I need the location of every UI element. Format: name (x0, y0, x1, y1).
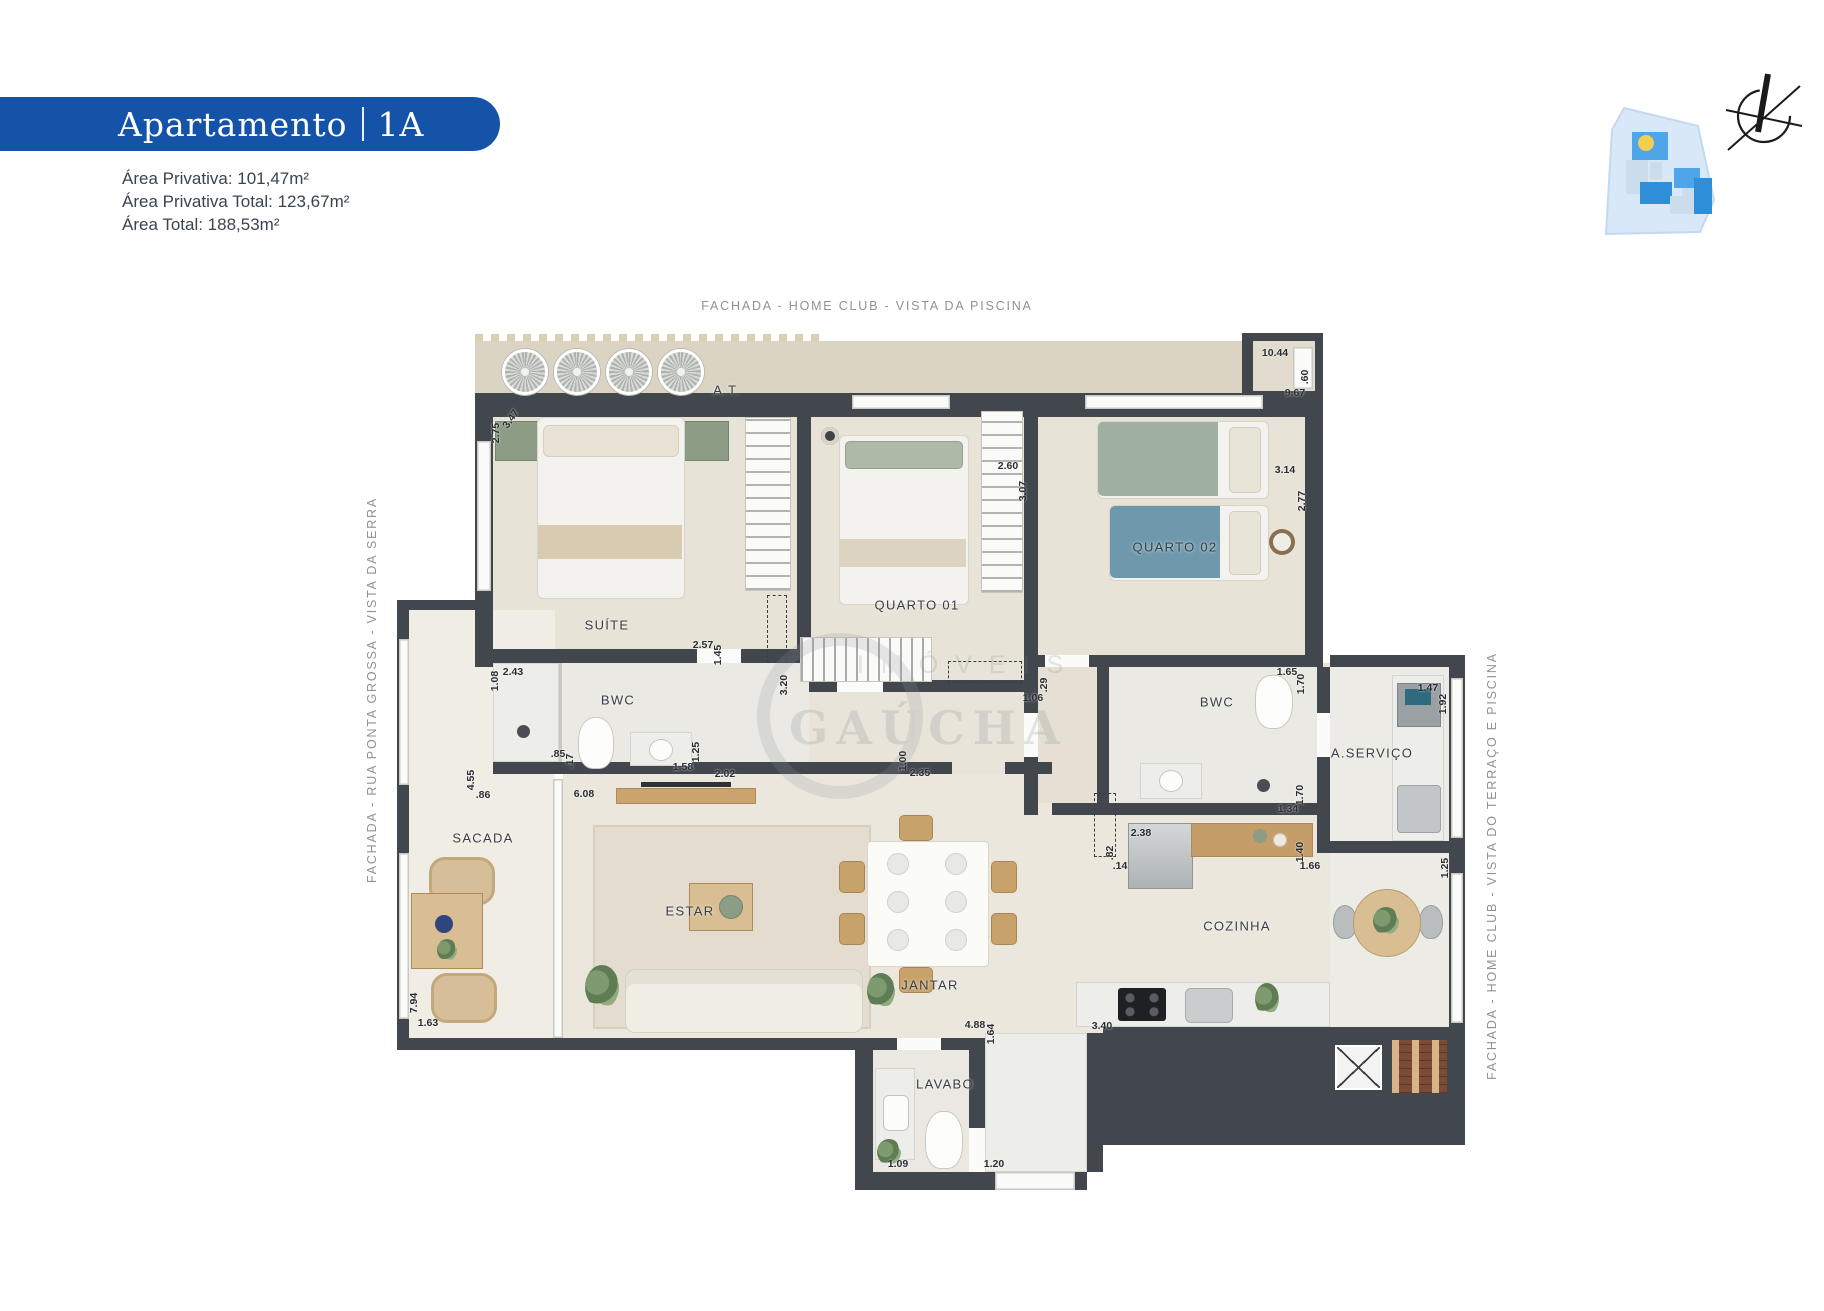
condenser-fan-icon (502, 349, 548, 395)
facade-label-top: FACHADA - HOME CLUB - VISTA DA PISCINA (667, 299, 1067, 313)
room-label-quarto02: QUARTO 02 (1133, 540, 1218, 555)
quarto02-bed1-blanket (1098, 422, 1218, 496)
area-total: Área Total: 188,53m² (122, 214, 349, 237)
badge-title: Apartamento (118, 105, 348, 144)
dim-label: 1.66 (1300, 860, 1320, 872)
badge-unit-number: 1A (378, 105, 425, 144)
dim-label: 3.07 (1017, 481, 1029, 501)
quarto01-wardrobe (981, 411, 1023, 593)
dim-label: 2.75 (490, 423, 502, 443)
wall (797, 393, 811, 649)
quarto02-mirror (1269, 529, 1295, 555)
bwc1-toilet (578, 717, 614, 769)
room-label-at: A.T. (713, 383, 741, 398)
dim-label: 3.20 (778, 675, 790, 695)
laundry-tank (1397, 785, 1441, 833)
dim-label: 1.63 (418, 1017, 438, 1029)
kitchen-sink (1185, 988, 1233, 1023)
vertical-garden-shaft (1392, 1040, 1447, 1093)
quarto01-wall-art (821, 427, 839, 445)
balcony-bench-bottom (431, 973, 497, 1023)
cooktop (1118, 988, 1166, 1021)
wall (1305, 393, 1323, 667)
dim-label: 2.60 (998, 460, 1018, 472)
wall (855, 1038, 873, 1190)
wall (1087, 1033, 1103, 1172)
dim-label: 1.58 (673, 761, 693, 773)
dim-label: .86 (476, 789, 491, 801)
room-label-jantar: JANTAR (901, 978, 958, 993)
balcony-glass-door (553, 779, 563, 1038)
room-label-bwc2: BWC (1200, 695, 1234, 710)
balcony-table-decor (435, 915, 453, 933)
suite-window (477, 441, 491, 591)
area-privativa-total: Área Privativa Total: 123,67m² (122, 191, 349, 214)
room-label-lavabo: LAVABO (916, 1077, 974, 1092)
bwc2-shower-head-icon (1257, 779, 1270, 792)
bwc2-door (1024, 713, 1038, 757)
plate (887, 929, 909, 951)
wall (1024, 393, 1038, 667)
room-label-sacada: SACADA (452, 831, 513, 846)
dim-label: 9.67 (1285, 387, 1305, 399)
floorplan-page: Apartamento 1A Área Privativa: 101,47m² … (0, 0, 1824, 1311)
dining-table (867, 841, 989, 967)
facade-label-right: FACHADA - HOME CLUB - VISTA DO TERRAÇO E… (1485, 652, 1499, 1080)
dim-label: 2.57 (693, 639, 713, 651)
dim-label: 1.00 (897, 751, 909, 771)
quarto02-window (1085, 395, 1263, 409)
quarto02-bed2-pillow (1229, 511, 1261, 575)
annex-window-2 (1451, 873, 1463, 1023)
living-plant-right (867, 973, 895, 1009)
dim-label: 1.09 (888, 1158, 908, 1170)
balcony-plant (437, 939, 457, 961)
quarto01-bed-pillows (845, 441, 963, 469)
dining-chair (899, 815, 933, 841)
quarto02-bed1-pillow (1229, 427, 1261, 493)
quarto01-bed-runner (840, 539, 966, 567)
tv-sideboard (616, 788, 756, 804)
wall (1005, 762, 1052, 774)
plate (887, 891, 909, 913)
counter-decor (1253, 829, 1267, 843)
terrace-plant (1373, 907, 1399, 935)
floor-plan: IMÓVEIS GAÚCHA A.T.SUÍTEQUARTO 01QUARTO … (397, 333, 1465, 1190)
plate (945, 891, 967, 913)
dim-label: 1.08 (489, 671, 501, 691)
plate (887, 853, 909, 875)
wall (397, 600, 475, 610)
lavabo-door (897, 1038, 941, 1050)
dim-label: 1.64 (985, 1024, 997, 1044)
bwc1-shower-head-icon (517, 725, 530, 738)
terrace-chair (1419, 905, 1443, 939)
quarto02-door (1045, 655, 1089, 667)
wall (855, 1172, 995, 1190)
ac-projection-dashed (767, 595, 787, 663)
dim-label: 3.40 (1092, 1020, 1112, 1032)
lavabo-sink (883, 1095, 909, 1131)
dim-label: 3.14 (1275, 464, 1295, 476)
dim-label: .60 (1299, 370, 1311, 385)
entry-hall-floor (985, 1033, 1087, 1172)
living-plant-left (585, 965, 619, 1009)
wall (1330, 841, 1449, 853)
dim-label: 2.38 (1131, 827, 1151, 839)
suite-wardrobe (745, 417, 791, 591)
wall (397, 1038, 897, 1050)
dim-label: 1.70 (1295, 674, 1307, 694)
room-label-estar: ESTAR (666, 904, 715, 919)
dim-label: 1.25 (690, 742, 702, 762)
bwc1-sink (649, 739, 673, 761)
condenser-fan-icon (554, 349, 600, 395)
condenser-fan-icon (606, 349, 652, 395)
suite-nightstand-right (683, 421, 729, 461)
area-privativa: Área Privativa: 101,47m² (122, 168, 349, 191)
kitchen-plant (1255, 983, 1279, 1015)
room-label-suite: SUÍTE (585, 618, 630, 633)
dim-label: 4.55 (465, 770, 477, 790)
dining-chair (991, 861, 1017, 893)
entry-door (995, 1172, 1075, 1190)
dim-label: 2.77 (1296, 491, 1308, 511)
elevator (1335, 1045, 1382, 1090)
wall (1075, 1172, 1087, 1190)
dim-label: 1.45 (712, 645, 724, 665)
room-label-aservico: A.SERVIÇO (1331, 746, 1413, 761)
dining-chair (839, 861, 865, 893)
dim-label: 10.44 (1262, 347, 1288, 359)
wall (941, 1038, 969, 1050)
suite-bed-runner (538, 525, 682, 559)
plate (945, 929, 967, 951)
annex-window-1 (1451, 678, 1463, 838)
quarto01-clothes-rack (800, 637, 932, 682)
room-label-cozinha: COZINHA (1203, 919, 1271, 934)
coffee-table-decor (719, 895, 743, 919)
dim-label: 4.88 (965, 1019, 985, 1031)
aservico-door (1317, 713, 1330, 757)
lavabo-side-door (969, 1128, 985, 1172)
facade-label-left: FACHADA - RUA PONTA GROSSA - VISTA DA SE… (365, 497, 379, 883)
dim-label: 1.47 (1418, 682, 1438, 694)
site-keyplan-icon (1596, 96, 1720, 238)
badge-divider (362, 107, 364, 141)
dining-chair (991, 913, 1017, 945)
room-label-bwc1: BWC (601, 693, 635, 708)
dim-label: 7.94 (408, 993, 420, 1013)
projection-dashed (948, 661, 1022, 683)
dim-label: 1.06 (1023, 692, 1043, 704)
dim-label: 2.43 (503, 666, 523, 678)
dim-label: .14 (1113, 860, 1128, 872)
dim-label: .82 (1104, 846, 1116, 861)
suite-bed-pillows (543, 425, 679, 457)
wall (1330, 655, 1465, 667)
bwc2-toilet (1255, 675, 1293, 729)
apartment-badge: Apartamento 1A (0, 97, 500, 151)
dim-label: 6.08 (574, 788, 594, 800)
dining-chair (839, 913, 865, 945)
condenser-fan-icon (658, 349, 704, 395)
quarto01-window (852, 395, 950, 409)
dim-label: 1.25 (1439, 858, 1451, 878)
bwc2-sink (1159, 770, 1183, 792)
dim-label: .17 (564, 754, 576, 769)
counter-decor (1273, 833, 1287, 847)
area-info: Área Privativa: 101,47m² Área Privativa … (122, 168, 349, 236)
dim-label: .29 (1038, 678, 1050, 693)
north-compass-icon (1720, 66, 1810, 176)
dim-label: 1.20 (984, 1158, 1004, 1170)
balcony-window-1 (399, 639, 409, 785)
wall (475, 649, 809, 663)
dim-label: 1.34 (1278, 803, 1298, 815)
dim-label: 2.02 (715, 768, 735, 780)
wall (1317, 667, 1330, 853)
sofa (625, 969, 863, 1033)
plate (945, 853, 967, 875)
dim-label: 1.92 (1437, 694, 1449, 714)
wall (809, 762, 952, 774)
tv (641, 782, 731, 787)
room-label-quarto01: QUARTO 01 (875, 598, 960, 613)
lavabo-toilet (925, 1111, 963, 1169)
dim-label: 2.35 (910, 767, 930, 779)
